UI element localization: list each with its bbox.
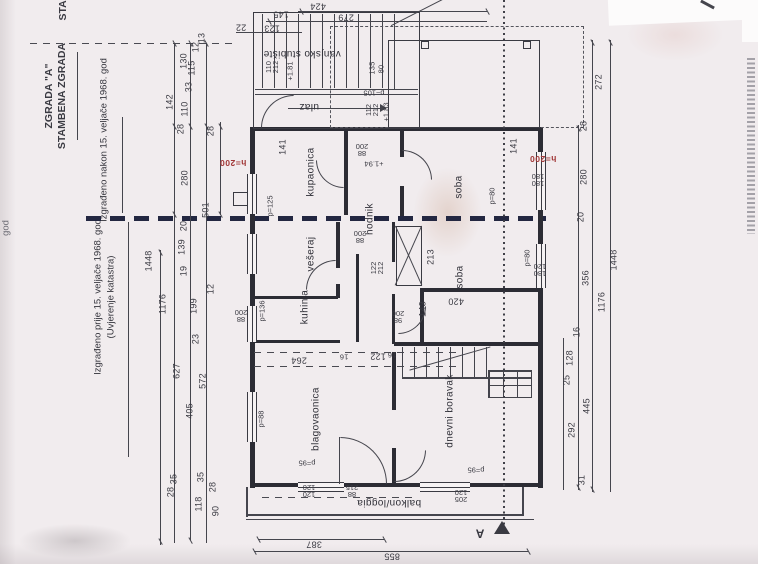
parapet-annotation: p=136 — [258, 300, 265, 321]
note-bracket-line — [122, 117, 123, 213]
dim-chain-line — [190, 43, 191, 540]
dim-label: 627 — [173, 363, 182, 379]
opening-annotation: 122 212 — [370, 262, 384, 275]
dim-label: 272 — [595, 74, 604, 90]
parapet-annotation: p=125 — [266, 195, 273, 216]
opening-annotation: 120 120 — [303, 484, 316, 498]
opening-annotation: 180 180 — [532, 173, 545, 187]
dim-label: 28 — [177, 124, 186, 134]
dim-label: 1176 — [598, 292, 607, 312]
window — [247, 174, 257, 214]
dim-label: 145 — [273, 10, 289, 19]
wall — [394, 342, 543, 346]
note-bracket-line — [128, 222, 129, 457]
dim-label: 90 — [212, 506, 221, 516]
dim-label: 28 — [167, 487, 176, 497]
dim-label: 855 — [384, 552, 400, 561]
balcony-edge — [522, 487, 524, 516]
dim-label: 110 — [181, 102, 190, 117]
dim-label: 16 — [388, 351, 397, 358]
dim-label: 20 — [180, 221, 189, 231]
parapet-annotation: p=105 — [363, 89, 384, 96]
wall — [250, 483, 543, 487]
dim-label: 25 — [563, 375, 572, 385]
dim-label: 123 — [264, 24, 280, 33]
door-arc — [402, 150, 432, 180]
level-annotation: +1.94 — [365, 160, 384, 167]
door-arc — [316, 160, 344, 188]
scan-smudge — [610, 0, 740, 70]
dim-chain-line — [174, 43, 175, 543]
dim-label: 23 — [192, 334, 201, 344]
area-label-ulaz: ulaz — [299, 101, 319, 111]
dim-label: 141 — [510, 138, 519, 154]
level-annotation: +1.81 — [286, 62, 293, 81]
dim-label: 213 — [427, 249, 436, 265]
room-label-soba-1: soba — [454, 175, 464, 198]
dim-label: 1176 — [159, 294, 168, 314]
dim-label: 16 — [340, 353, 349, 360]
dim-label: 264 — [291, 356, 307, 365]
dim-label: 33 — [185, 82, 194, 92]
scan-mark — [700, 0, 715, 9]
post — [523, 41, 531, 49]
balcony-outer-line — [246, 519, 534, 520]
wall — [400, 186, 404, 216]
note-built-after: Izgrađeno nakon 15. veljače 1968. god — [99, 58, 108, 222]
opening-annotation: 88 215 — [346, 484, 359, 498]
dim-label: 35 — [197, 472, 206, 482]
dim-tick — [526, 548, 531, 555]
dim-label: 20 — [577, 212, 586, 222]
dim-label: 387 — [306, 540, 322, 549]
wall — [392, 352, 396, 410]
dim-label: 122 — [370, 352, 386, 361]
dim-label: 199 — [190, 298, 199, 314]
room-label-hodnik: hodnik — [365, 203, 375, 235]
post — [421, 41, 429, 49]
area-label-vanjsko-stubiste: vanjsko stubište — [263, 48, 341, 58]
parapet-annotation: p=88 — [257, 411, 264, 428]
building-title-line1: ZGRADA "A" — [45, 64, 55, 129]
dim-label: 445 — [583, 398, 592, 414]
terrace-outline — [388, 40, 540, 128]
door-leaf — [339, 437, 340, 484]
title-underline — [77, 52, 78, 140]
dim-label: 80 — [377, 65, 384, 74]
dim-label: 28 — [580, 121, 589, 131]
dim-label: 141 — [279, 139, 288, 155]
scan-white-edge — [742, 0, 758, 42]
window — [247, 234, 257, 274]
dim-label: 31 — [578, 475, 587, 485]
edge-stamp-artifact — [747, 58, 755, 234]
dim-label: 572 — [199, 373, 208, 389]
dim-label: 501 — [202, 202, 211, 218]
dim-label: 135 — [368, 61, 375, 74]
margin-partial-text: god — [1, 220, 10, 236]
dim-chain-line — [298, 11, 487, 12]
dim-chain-line — [592, 40, 593, 492]
dim-label: 142 — [166, 94, 175, 110]
dim-chain-line — [266, 21, 487, 22]
parapet-annotation: p=95 — [299, 459, 316, 466]
level-annotation: +1.83 — [382, 103, 389, 122]
parapet-annotation: p=95 — [468, 466, 485, 473]
floor-plan-scan: STAM ZGRADA "A" STAMBENA ZGRADA Izgrađen… — [0, 0, 758, 564]
wall — [356, 254, 359, 342]
dim-label: 128 — [566, 350, 575, 366]
dim-label: 279 — [338, 13, 354, 22]
dim-label: 28 — [207, 126, 216, 136]
door-arc — [394, 450, 426, 482]
dim-label: 19 — [180, 266, 189, 276]
dim-chain-line — [220, 122, 221, 215]
building-title-line2: STAMBENA ZGRADA — [58, 43, 68, 149]
balcony-door-arc — [340, 437, 387, 484]
dim-label: 424 — [310, 2, 326, 11]
room-label-kupaonica: kupaonica — [306, 147, 316, 196]
balcony-edge — [246, 514, 524, 516]
opening-annotation: 88 200 — [354, 230, 367, 244]
note-built-before-sub: (Uvjerenje katastra) — [106, 256, 115, 339]
room-label-veseraj: vešeraj — [306, 236, 316, 271]
opening-annotation: 88 200 — [356, 143, 369, 157]
dim-label: 12 — [192, 42, 201, 52]
opening-annotation: 88 200 — [235, 309, 248, 323]
dim-label: 420 — [448, 297, 464, 306]
dim-label: 143 — [419, 301, 428, 317]
dim-tick — [485, 8, 490, 15]
opening-annotation: 180 120 — [534, 263, 547, 277]
wall — [344, 131, 348, 215]
margin-partial-text: STAM — [59, 0, 69, 20]
window — [247, 306, 257, 342]
scan-smudge — [0, 518, 150, 564]
dim-label: 1448 — [145, 251, 154, 272]
dim-label: 280 — [580, 169, 589, 185]
opening-annotation: 98 200 — [392, 310, 405, 324]
dim-tick — [382, 536, 387, 543]
parapet-annotation: p=80 — [523, 250, 530, 267]
stair-winder-grid — [488, 370, 532, 398]
dim-label: 405 — [186, 403, 195, 419]
scan-smudge — [0, 0, 16, 564]
opening-annotation: 205 120 — [455, 489, 468, 503]
balcony-edge — [246, 487, 248, 517]
dim-label: 356 — [582, 270, 591, 286]
wall — [252, 340, 340, 343]
dim-label: 28 — [209, 482, 218, 492]
opening-annotation: 112 212 — [365, 104, 379, 117]
dim-label: 22 — [236, 23, 246, 32]
section-line — [503, 0, 505, 525]
construction-boundary-bold-dashed — [86, 216, 546, 221]
dim-label: 115 — [188, 61, 197, 76]
dim-label: 12 — [207, 284, 216, 294]
height-annotation-red: h=200 — [530, 155, 557, 163]
note-built-before: Izgrađeno prije 15. veljače 1968. god — [93, 219, 102, 375]
opening-annotation: 110 212 — [265, 61, 279, 74]
dim-label: 1448 — [610, 250, 619, 271]
dim-label: 139 — [178, 239, 187, 255]
wall — [252, 296, 338, 299]
room-label-soba-2: soba — [455, 265, 465, 288]
wall — [420, 288, 540, 292]
room-label-kuhinja: kuhinja — [300, 290, 310, 325]
dim-label: 35 — [170, 474, 179, 484]
height-annotation-red: h=200 — [220, 159, 247, 167]
scan-white-edge — [607, 0, 758, 26]
scan-smudge — [0, 544, 758, 564]
parapet-annotation: p=80 — [488, 188, 495, 205]
room-label-dnevni-boravak: dnevni boravak — [445, 374, 455, 447]
dim-label: 280 — [181, 170, 190, 186]
wall — [336, 222, 340, 268]
section-marker-triangle — [494, 521, 510, 534]
area-label-balkon-loggia: balkon/loggia — [357, 497, 421, 507]
dim-label: 292 — [568, 422, 577, 438]
room-label-blagovaonica: blagovaonica — [311, 387, 321, 451]
dim-label: 118 — [195, 497, 204, 512]
dim-label: 16 — [573, 327, 582, 337]
section-marker-label: A — [476, 527, 485, 538]
